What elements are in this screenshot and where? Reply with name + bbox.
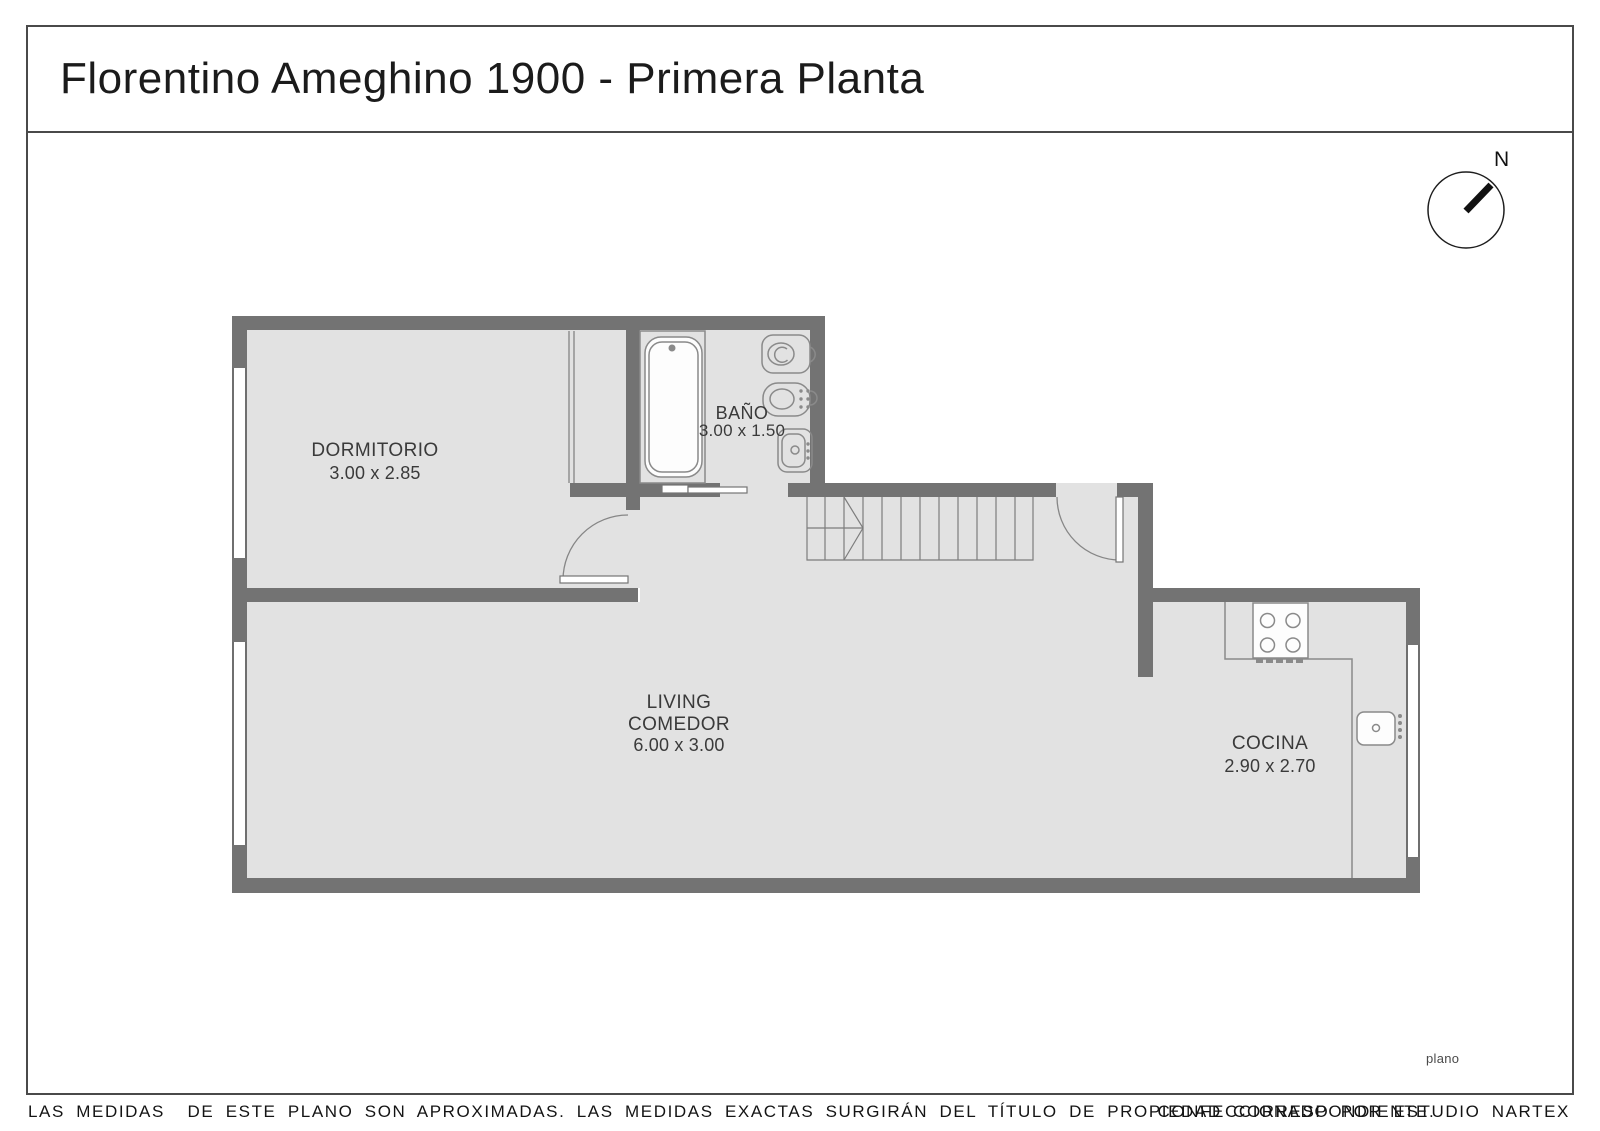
wall-bano-bottom [570, 483, 720, 497]
window-dormitorio [232, 368, 247, 558]
room-name: COCINA [1224, 733, 1315, 755]
floor-passage [1138, 677, 1153, 878]
room-name: BAÑO [699, 404, 785, 422]
room-dims: 6.00 x 3.00 [628, 735, 730, 757]
floor-bano-doorway [720, 483, 788, 497]
floorplan-page: Florentino Ameghino 1900 - Primera Plant… [0, 0, 1600, 1131]
watermark-plano: plano [1426, 1051, 1459, 1066]
north-label: N [1494, 148, 1509, 172]
wall-hall-right [1138, 483, 1153, 677]
page-title: Florentino Ameghino 1900 - Primera Plant… [60, 54, 924, 104]
room-dims: 2.90 x 2.70 [1224, 755, 1315, 777]
floor-doorway [627, 510, 640, 588]
room-label-cocina: COCINA 2.90 x 2.70 [1224, 733, 1315, 777]
window-cocina [1406, 645, 1420, 857]
room-dims: 3.00 x 1.50 [699, 422, 785, 440]
room-label-dormitorio: DORMITORIO 3.00 x 2.85 [311, 439, 438, 485]
floor-entry-doorway [1056, 483, 1117, 497]
wall-bottom [232, 878, 1420, 893]
room-label-bano: BAÑO 3.00 x 1.50 [699, 404, 785, 440]
footer-credit: CONFECCIONADO POR ESTUDIO NARTEX [1157, 1102, 1570, 1122]
title-separator [26, 131, 1574, 133]
wall-stairs-top [788, 483, 1056, 497]
room-name-2: COMEDOR [628, 714, 730, 736]
room-label-living: LIVING COMEDOR 6.00 x 3.00 [628, 692, 730, 757]
wall-top [232, 316, 825, 330]
wall-cocina-top [1138, 588, 1420, 602]
wall-bano-right [810, 316, 825, 497]
floor-hall [640, 497, 1138, 602]
room-dims: 3.00 x 2.85 [311, 462, 438, 485]
room-name: LIVING [628, 692, 730, 714]
wall-divider-dorm-living [232, 588, 638, 602]
window-living [232, 642, 247, 845]
room-name: DORMITORIO [311, 439, 438, 462]
